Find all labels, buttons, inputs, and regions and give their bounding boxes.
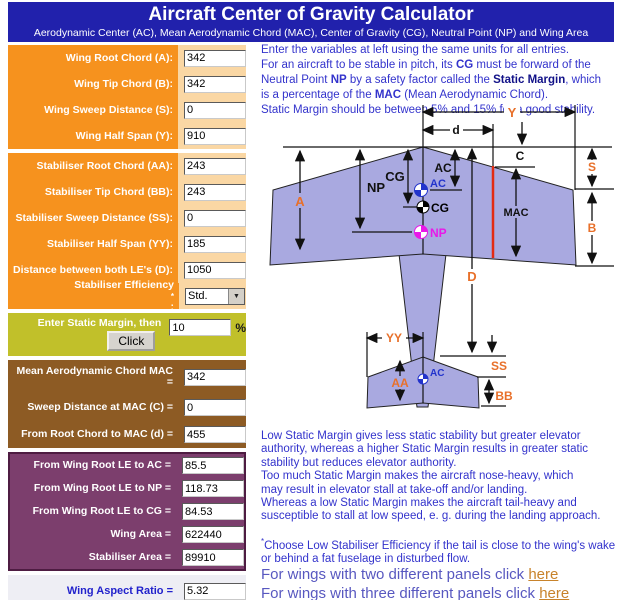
dim-label-AA: AA	[391, 376, 409, 390]
info-column: Enter the variables at left using the sa…	[255, 42, 623, 600]
stabiliser-sweep-distance-input[interactable]	[184, 210, 246, 227]
stabiliser-root-chord-row: Stabiliser Root Chord (AA):	[8, 153, 246, 179]
stabiliser-efficiency-select-value: Std.	[186, 289, 228, 304]
stabiliser-area-input[interactable]	[182, 549, 244, 566]
wing-root-chord-row: Wing Root Chord (A):	[8, 45, 246, 71]
wing-root-le-to-cg-label: From Wing Root LE to CG =	[10, 506, 176, 517]
text-segment: susceptible to stall at low speed, e. g.…	[261, 510, 600, 522]
dim-label-A: A	[295, 194, 305, 209]
wing-tip-chord-input[interactable]	[184, 76, 246, 93]
header-bar: Aircraft Center of Gravity Calculator Ae…	[8, 2, 614, 42]
percent-label: %	[235, 321, 246, 335]
text-segment: Low Static Margin gives less static stab…	[261, 430, 581, 442]
static-margin-note: Low Static Margin gives less static stab…	[261, 430, 600, 524]
text-line: *Choose Low Stabiliser Efficiency if the…	[261, 535, 615, 553]
dim-label-AC: AC	[434, 161, 452, 175]
wing-root-chord-label: Wing Root Chord (A):	[8, 45, 178, 71]
stabiliser-efficiency-row: Stabiliser Efficiency*:Std.▼	[8, 283, 246, 309]
wing-area-input[interactable]	[182, 526, 244, 543]
wing-root-chord-input[interactable]	[184, 50, 246, 67]
text-segment: authority, whereas a higher Static Margi…	[261, 443, 588, 455]
static-margin-input[interactable]	[169, 319, 231, 336]
dim-label-CG: CG	[385, 169, 405, 184]
text-line: For an aircraft to be stable in pitch, i…	[261, 58, 601, 73]
text-line: For wings with three different panels cl…	[261, 584, 569, 600]
form-column: Wing Root Chord (A):Wing Tip Chord (B):W…	[8, 45, 246, 600]
dim-label-SS: SS	[491, 359, 507, 373]
results-panel: From Wing Root LE to AC =From Wing Root …	[8, 452, 246, 571]
stabiliser-sweep-distance-row: Stabiliser Sweep Distance (SS):	[8, 205, 246, 231]
text-line: Neutral Point NP by a safety factor call…	[261, 73, 601, 88]
dim-label-NP: NP	[367, 180, 385, 195]
dim-label-Y: Y	[508, 105, 517, 120]
wing-sweep-distance-input[interactable]	[184, 102, 246, 119]
aspect-ratio-label: Wing Aspect Ratio =	[8, 586, 178, 597]
wing-tip-chord-label: Wing Tip Chord (B):	[8, 71, 178, 97]
aspect-ratio-input[interactable]	[184, 583, 246, 600]
dim-label-BB: BB	[495, 389, 513, 403]
page-subtitle: Aerodynamic Center (AC), Mean Aerodynami…	[8, 27, 614, 39]
wing-sweep-distance-label: Wing Sweep Distance (S):	[8, 97, 178, 123]
wing-root-le-to-cg-input[interactable]	[182, 503, 244, 520]
marker-label-stab-ac: AC	[430, 368, 444, 379]
static-margin-panel: Enter Static Margin, then Click %	[8, 313, 246, 356]
wing-tip-chord-row: Wing Tip Chord (B):	[8, 71, 246, 97]
text-line: Low Static Margin gives less static stab…	[261, 430, 600, 443]
text-line: Enter the variables at left using the sa…	[261, 43, 601, 58]
dim-label-MAC: MAC	[503, 207, 528, 219]
click-button[interactable]: Click	[107, 331, 155, 351]
wing-area-row: Wing Area =	[10, 523, 244, 546]
text-segment: Neutral Point	[261, 74, 331, 86]
wing-root-le-to-ac-row: From Wing Root LE to AC =	[10, 454, 244, 477]
text-segment: or behind a fat fuselage in disturbed fl…	[261, 553, 470, 565]
dim-label-D: D	[467, 269, 476, 284]
stabiliser-root-chord-input[interactable]	[184, 158, 246, 175]
marker-label-ac: AC	[430, 178, 446, 190]
page: Aircraft Center of Gravity Calculator Ae…	[0, 0, 623, 600]
text-segment: Choose Low Stabiliser Efficiency if the …	[264, 540, 615, 552]
text-line: For wings with two different panels clic…	[261, 565, 569, 584]
np-marker	[415, 226, 428, 239]
wing-root-le-to-ac-input[interactable]	[182, 457, 244, 474]
text-segment: For wings with two different panels clic…	[261, 566, 528, 583]
stabiliser-tip-chord-input[interactable]	[184, 184, 246, 201]
wing-half-span-row: Wing Half Span (Y):	[8, 123, 246, 149]
wing-area-label: Wing Area =	[10, 529, 176, 540]
text-segment: NP	[331, 74, 347, 86]
here-link[interactable]: here	[528, 566, 558, 583]
panel-links: For wings with two different panels clic…	[261, 565, 569, 600]
wing-half-span-input[interactable]	[184, 128, 246, 145]
stabiliser-efficiency-label: Stabiliser Efficiency*:	[8, 283, 179, 309]
stabiliser-half-span-row: Stabiliser Half Span (YY):	[8, 231, 246, 257]
text-segment: , which	[565, 74, 601, 86]
marker-label-np: NP	[430, 226, 447, 240]
sweep-distance-at-mac-row: Sweep Distance at MAC (C) =	[8, 394, 246, 421]
wing-sweep-distance-row: Wing Sweep Distance (S):	[8, 97, 246, 123]
stabiliser-half-span-input[interactable]	[184, 236, 246, 253]
dim-label-S: S	[588, 160, 596, 174]
stabiliser-tip-chord-label: Stabiliser Tip Chord (BB):	[8, 179, 178, 205]
here-link[interactable]: here	[539, 585, 569, 600]
text-segment: For an aircraft to be stable in pitch, i…	[261, 59, 456, 71]
aspect-ratio-row: Wing Aspect Ratio =	[8, 575, 246, 600]
root-chord-to-mac-row: From Root Chord to MAC (d) =	[8, 421, 246, 448]
dim-label-C: C	[516, 149, 525, 163]
stabiliser-efficiency-select[interactable]: Std.▼	[185, 288, 245, 305]
text-segment: For wings with three different panels cl…	[261, 585, 539, 600]
sweep-distance-at-mac-label: Sweep Distance at MAC (C) =	[8, 402, 178, 413]
stabiliser-panel: Stabiliser Root Chord (AA):Stabiliser Ti…	[8, 153, 246, 309]
text-segment: by a safety factor called the	[347, 74, 493, 86]
wing-root-le-to-cg-row: From Wing Root LE to CG =	[10, 500, 244, 523]
text-segment: Enter the variables at left using the sa…	[261, 44, 569, 56]
marker-label-cg: CG	[431, 201, 449, 215]
mean-aerodynamic-chord-label: Mean Aerodynamic Chord MAC=	[8, 366, 178, 388]
wing-root-le-to-np-input[interactable]	[182, 480, 244, 497]
wing-root-le-to-np-row: From Wing Root LE to NP =	[10, 477, 244, 500]
stabiliser-area-row: Stabiliser Area =	[10, 546, 244, 569]
efficiency-footnote: *Choose Low Stabiliser Efficiency if the…	[261, 535, 615, 567]
text-segment: Whereas a low Static Margin makes the ai…	[261, 497, 577, 509]
stab-ac-marker	[418, 374, 428, 384]
text-segment: must be forward of the	[473, 59, 591, 71]
text-line: stability but reduces elevator authority…	[261, 457, 600, 470]
root-chord-to-mac-label: From Root Chord to MAC (d) =	[8, 429, 178, 440]
text-line: Whereas a low Static Margin makes the ai…	[261, 497, 600, 510]
cg-marker	[417, 201, 429, 213]
text-line: authority, whereas a higher Static Margi…	[261, 443, 600, 456]
stabiliser-tip-chord-row: Stabiliser Tip Chord (BB):	[8, 179, 246, 205]
dim-label-d: d	[452, 123, 459, 137]
dim-label-YY: YY	[386, 331, 402, 345]
wing-root-le-to-np-label: From Wing Root LE to NP =	[10, 483, 176, 494]
wing-root-le-to-ac-label: From Wing Root LE to AC =	[10, 460, 176, 471]
text-segment: stability but reduces elevator authority…	[261, 457, 456, 469]
text-line: may result in elevator stall at take-off…	[261, 484, 600, 497]
text-segment: CG	[456, 59, 473, 71]
root-chord-to-mac-input[interactable]	[184, 426, 246, 443]
stabiliser-area-label: Stabiliser Area =	[10, 552, 176, 563]
wing-half-span-label: Wing Half Span (Y):	[8, 123, 178, 149]
mac-panel: Mean Aerodynamic Chord MAC=Sweep Distanc…	[8, 360, 246, 448]
stabiliser-root-chord-label: Stabiliser Root Chord (AA):	[8, 153, 178, 179]
sweep-distance-at-mac-input[interactable]	[184, 399, 246, 416]
stabiliser-sweep-distance-label: Stabiliser Sweep Distance (SS):	[8, 205, 178, 231]
text-line: Too much Static Margin makes the aircraf…	[261, 470, 600, 483]
mean-aerodynamic-chord-row: Mean Aerodynamic Chord MAC=	[8, 360, 246, 394]
wing-panel: Wing Root Chord (A):Wing Tip Chord (B):W…	[8, 45, 246, 149]
dim-label-B: B	[588, 221, 597, 235]
chevron-down-icon[interactable]: ▼	[228, 289, 244, 304]
wing-diagram: Y S B A D YY SS AA BB d C MAC NP CG AC	[255, 100, 623, 432]
text-line: susceptible to stall at low speed, e. g.…	[261, 510, 600, 523]
distance-between-les-input[interactable]	[184, 262, 246, 279]
mean-aerodynamic-chord-input[interactable]	[184, 369, 246, 386]
stabiliser-half-span-label: Stabiliser Half Span (YY):	[8, 231, 178, 257]
text-segment: Too much Static Margin makes the aircraf…	[261, 470, 573, 482]
ac-marker	[415, 184, 428, 197]
text-segment: Static Margin	[493, 74, 565, 86]
page-title: Aircraft Center of Gravity Calculator	[8, 5, 614, 25]
text-segment: may result in elevator stall at take-off…	[261, 484, 527, 496]
static-margin-label: Enter Static Margin, then	[38, 317, 164, 329]
